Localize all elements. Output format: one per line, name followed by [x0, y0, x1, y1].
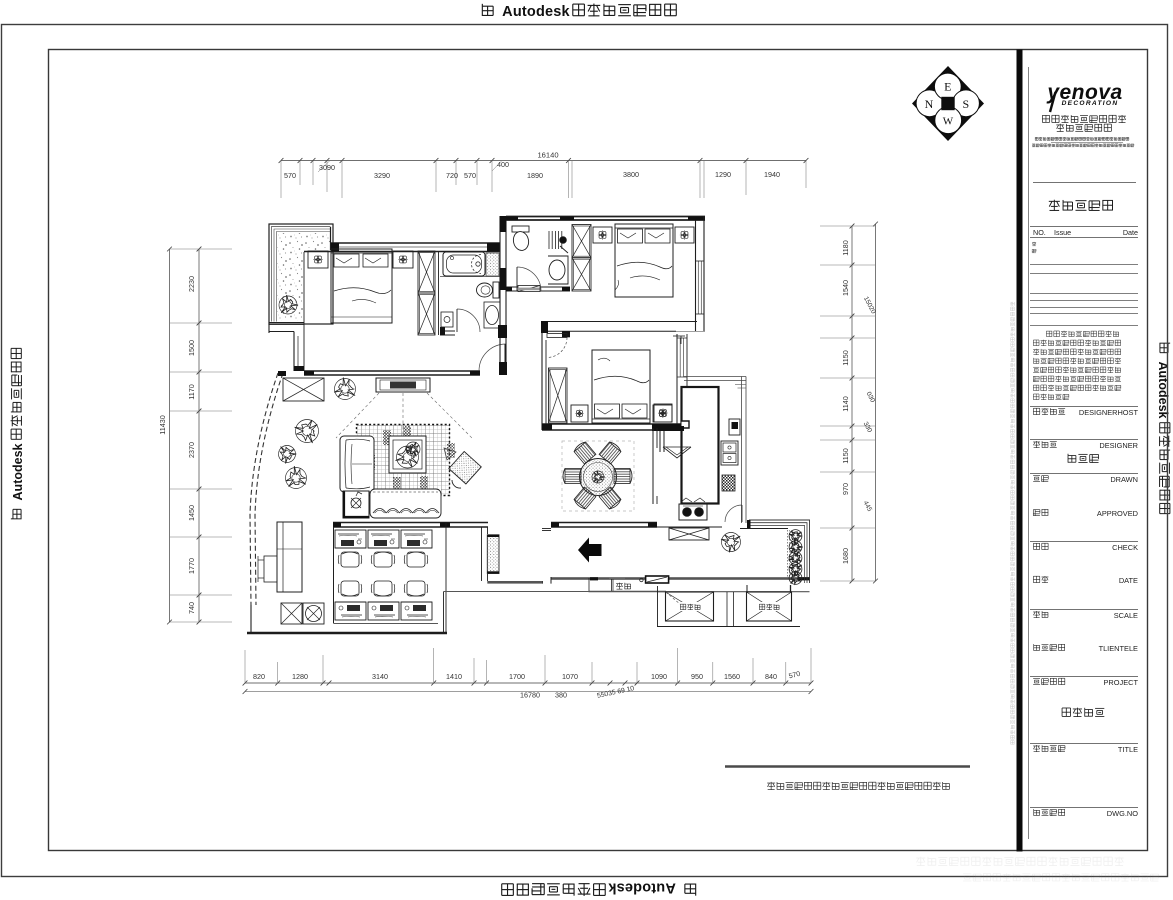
svg-text:DRAWN: DRAWN — [1110, 475, 1138, 484]
svg-text:APPROVED: APPROVED — [1097, 509, 1138, 518]
svg-text:CHECK: CHECK — [1112, 543, 1138, 552]
svg-text:1540: 1540 — [841, 280, 850, 296]
svg-text:1170: 1170 — [187, 384, 196, 399]
svg-text:1410: 1410 — [446, 672, 462, 681]
svg-text:380: 380 — [555, 691, 567, 700]
svg-text:1770: 1770 — [187, 558, 196, 574]
svg-text:3290: 3290 — [374, 171, 390, 180]
svg-text:1150: 1150 — [841, 448, 850, 463]
svg-text:N: N — [925, 97, 934, 111]
svg-text:1700: 1700 — [509, 672, 525, 681]
svg-text:3090: 3090 — [319, 163, 335, 172]
svg-text:1890: 1890 — [527, 171, 543, 180]
svg-text:NO.: NO. — [1033, 228, 1046, 237]
svg-text:840: 840 — [765, 672, 777, 681]
svg-text:1680: 1680 — [841, 548, 850, 564]
svg-text:1560: 1560 — [724, 672, 740, 681]
svg-text:Date: Date — [1123, 228, 1138, 237]
svg-text:W: W — [943, 116, 954, 128]
svg-text:720: 720 — [446, 171, 458, 180]
svg-text:DESIGNERHOST: DESIGNERHOST — [1079, 408, 1139, 417]
svg-text:DESIGNER: DESIGNER — [1099, 441, 1138, 450]
svg-text:1290: 1290 — [715, 170, 731, 179]
svg-text:570: 570 — [284, 171, 296, 180]
svg-text:Autodesk: Autodesk — [607, 880, 675, 896]
svg-text:2230: 2230 — [187, 276, 196, 292]
svg-text:16140: 16140 — [537, 151, 558, 160]
svg-text:2370: 2370 — [187, 442, 196, 458]
svg-text:E: E — [944, 80, 951, 94]
svg-text:S: S — [962, 97, 969, 111]
svg-text:1450: 1450 — [187, 505, 196, 521]
svg-text:1940: 1940 — [764, 170, 780, 179]
svg-text:1500: 1500 — [187, 340, 196, 356]
svg-text:Autodesk: Autodesk — [11, 443, 25, 500]
svg-text:16780: 16780 — [520, 691, 540, 700]
svg-text:970: 970 — [841, 483, 850, 495]
svg-text:Autodesk: Autodesk — [502, 4, 570, 20]
svg-text:Issue: Issue — [1054, 228, 1071, 237]
svg-text:1180: 1180 — [841, 240, 850, 255]
svg-text:570: 570 — [464, 171, 476, 180]
svg-text:1140: 1140 — [841, 396, 850, 411]
svg-text:400: 400 — [497, 160, 509, 169]
svg-text:820: 820 — [253, 672, 265, 681]
svg-text:740: 740 — [187, 602, 196, 614]
svg-text:950: 950 — [691, 672, 703, 681]
svg-text:DATE: DATE — [1119, 576, 1138, 585]
svg-text:11430: 11430 — [158, 415, 167, 434]
svg-text:1280: 1280 — [292, 672, 308, 681]
svg-text:1090: 1090 — [651, 672, 667, 681]
svg-text:3140: 3140 — [372, 672, 388, 681]
svg-text:3800: 3800 — [623, 170, 639, 179]
svg-text:DWG.NO: DWG.NO — [1107, 809, 1138, 818]
svg-text:1150: 1150 — [841, 350, 850, 365]
svg-text:PROJECT: PROJECT — [1104, 678, 1139, 687]
svg-text:TITLE: TITLE — [1118, 745, 1138, 754]
svg-text:TLIENTELE: TLIENTELE — [1099, 644, 1138, 653]
svg-text:DECORATION: DECORATION — [1062, 100, 1119, 107]
svg-text:1070: 1070 — [562, 672, 578, 681]
svg-text:SCALE: SCALE — [1114, 611, 1138, 620]
